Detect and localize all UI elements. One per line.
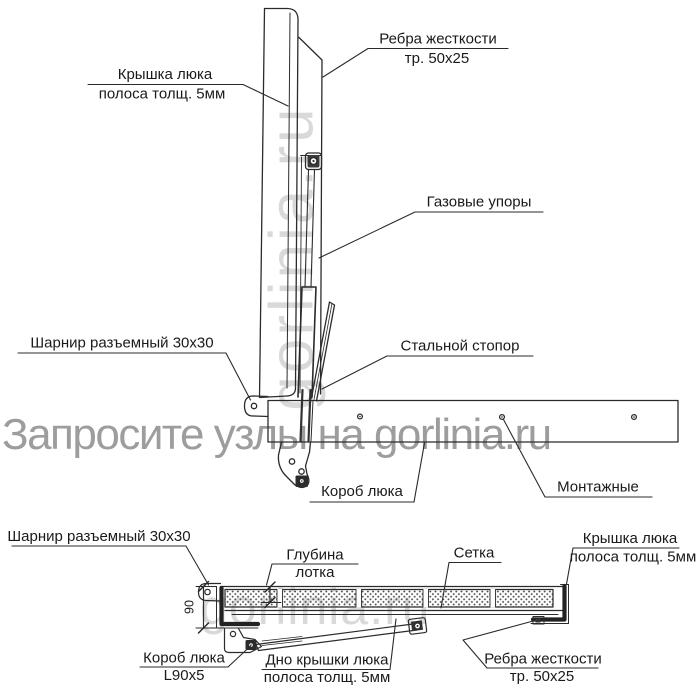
label-box-b-line2: L90x5: [164, 667, 205, 684]
label-mounting: Монтажные: [557, 479, 639, 496]
top-view-leaders: [18, 49, 652, 503]
label-bottom-line1: Дно крышки люка: [265, 652, 389, 669]
label-stopper: Стальной стопор: [401, 338, 520, 355]
cover-bottom-plate: [225, 611, 563, 615]
lower-mount-bracket: [278, 442, 310, 488]
label-ribs-line2: тр. 50х25: [405, 50, 469, 67]
stiffening-rib-edge: [299, 38, 322, 395]
hatch-box: [268, 401, 678, 443]
label-cover-r-line2: полоса толщ. 5мм: [570, 549, 697, 566]
label-ribs-b-line2: тр. 50х25: [510, 668, 574, 685]
bottom-view: Шарнир разъемный 30х30 90 Глубина лотка …: [7, 528, 696, 686]
label-cover-r-line1: Крышка люка: [583, 530, 678, 547]
lower-hinge-bracket: [225, 629, 262, 653]
label-ribs-b-line1: Ребра жесткости: [484, 651, 602, 668]
label-hinge-section: Шарнир разъемный 30х30: [7, 528, 190, 545]
label-gas-struts: Газовые упоры: [427, 194, 532, 211]
label-depth-line2: лотка: [295, 564, 335, 581]
label-hinge: Шарнир разъемный 30х30: [30, 335, 213, 352]
mounting-holes: [358, 414, 637, 419]
top-view: Крышка люка полоса толщ. 5мм Ребра жестк…: [18, 9, 678, 503]
hinge-lug: [245, 396, 269, 417]
drawing-canvas: Крышка люка полоса толщ. 5мм Ребра жестк…: [0, 0, 700, 700]
stowed-gas-strut: [256, 617, 427, 650]
label-cover-line2: полоса толщ. 5мм: [99, 86, 226, 103]
label-box-b-line1: Короб люка: [143, 650, 225, 667]
label-box: Короб люка: [321, 483, 403, 500]
label-mesh: Сетка: [454, 545, 495, 562]
label-ribs-line1: Ребра жесткости: [379, 31, 497, 48]
hatch-technical-drawing: gorlinia.ru gorlinia.ru Запросите узлы н…: [0, 0, 700, 700]
label-depth-line1: Глубина: [286, 547, 344, 564]
hatch-cover-panel: [260, 9, 299, 398]
label-cover-line1: Крышка люка: [118, 66, 213, 83]
label-dim-90: 90: [183, 600, 197, 614]
label-bottom-line2: полоса толщ. 5мм: [264, 669, 391, 686]
